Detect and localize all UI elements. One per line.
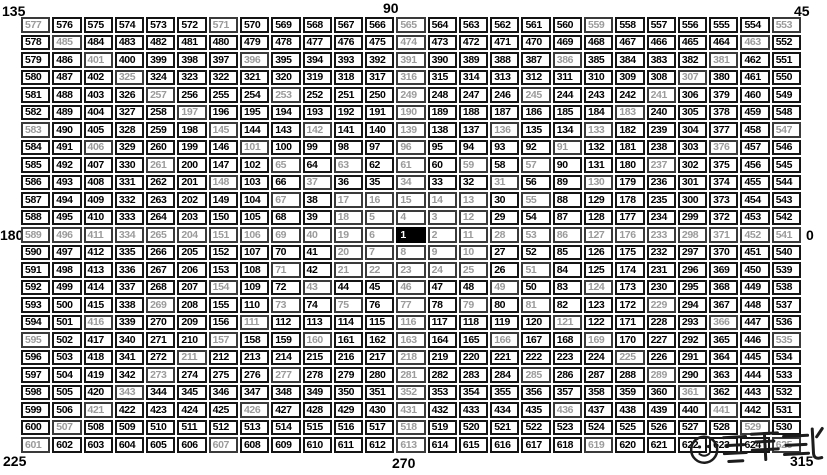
grid-cell: 276: [240, 367, 269, 383]
grid-cell: 417: [84, 332, 113, 348]
grid-cell: 420: [84, 385, 113, 401]
grid-cell: 508: [84, 420, 113, 436]
grid-cell: 335: [115, 245, 144, 261]
grid-cell: 209: [177, 315, 206, 331]
angle-line-cell: 57: [521, 157, 550, 173]
angle-line-cell: 142: [303, 122, 332, 138]
grid-cell: 458: [740, 122, 769, 138]
angle-line-cell: 381: [709, 52, 738, 68]
grid-cell: 134: [553, 122, 582, 138]
grid-cell: 114: [334, 315, 363, 331]
angle-line-cell: 463: [740, 35, 769, 51]
grid-cell: 543: [772, 192, 801, 208]
grid-cell: 544: [772, 175, 801, 191]
grid-cell: 568: [303, 17, 332, 33]
angle-line-cell: 583: [21, 122, 50, 138]
grid-cell: 187: [490, 105, 519, 121]
grid-cell: 618: [553, 437, 582, 453]
grid-cell: 502: [52, 332, 81, 348]
grid-cell: 199: [177, 140, 206, 156]
grid-cell: 102: [240, 157, 269, 173]
angle-line-cell: 421: [84, 402, 113, 418]
grid-cell: 312: [521, 70, 550, 86]
grid-cell: 78: [428, 297, 457, 313]
grid-cell: 192: [334, 105, 363, 121]
grid-cell: 152: [209, 245, 238, 261]
angle-line-cell: 298: [678, 227, 707, 243]
grid-cell: 363: [709, 367, 738, 383]
grid-cell: 606: [177, 437, 206, 453]
grid-cell: 100: [271, 140, 300, 156]
angle-line-cell: 371: [709, 227, 738, 243]
grid-cell: 504: [52, 367, 81, 383]
grid-cell: 33: [428, 175, 457, 191]
grid-cell: 194: [271, 105, 300, 121]
angle-line-cell: 65: [271, 157, 300, 173]
grid-cell: 572: [177, 17, 206, 33]
grid-cell: 240: [647, 105, 676, 121]
grid-cell: 310: [584, 70, 613, 86]
grid-cell: 203: [177, 210, 206, 226]
angle-line-cell: 151: [209, 227, 238, 243]
grid-cell: 193: [303, 105, 332, 121]
angle-line-cell: 24: [428, 262, 457, 278]
grid-cell: 605: [146, 437, 175, 453]
grid-cell: 475: [365, 35, 394, 51]
grid-cell: 248: [428, 87, 457, 103]
grid-cell: 320: [271, 70, 300, 86]
grid-cell: 612: [365, 437, 394, 453]
grid-cell: 303: [678, 140, 707, 156]
grid-cell: 215: [303, 350, 332, 366]
angle-line-cell: 25: [459, 262, 488, 278]
angle-line-cell: 176: [615, 227, 644, 243]
grid-cell: 380: [709, 70, 738, 86]
grid-cell: 405: [84, 122, 113, 138]
grid-cell: 42: [303, 262, 332, 278]
grid-cell: 395: [271, 52, 300, 68]
angle-label-270: 270: [392, 456, 415, 470]
grid-cell: 525: [615, 420, 644, 436]
grid-cell: 428: [303, 402, 332, 418]
grid-cell: 435: [521, 402, 550, 418]
angle-label-315: 315: [790, 454, 813, 468]
angle-line-cell: 218: [396, 350, 425, 366]
grid-cell: 201: [177, 175, 206, 191]
grid-cell: 159: [271, 332, 300, 348]
grid-cell: 591: [21, 262, 50, 278]
grid-cell: 456: [740, 157, 769, 173]
angle-line-cell: 31: [490, 175, 519, 191]
grid-cell: 297: [678, 245, 707, 261]
grid-cell: 567: [334, 17, 363, 33]
grid-cell: 501: [52, 315, 81, 331]
grid-cell: 429: [334, 402, 363, 418]
grid-cell: 109: [240, 280, 269, 296]
grid-cell: 147: [209, 157, 238, 173]
grid-cell: 460: [740, 87, 769, 103]
grid-cell: 304: [678, 122, 707, 138]
angle-label-45: 45: [794, 4, 810, 18]
grid-cell: 330: [115, 157, 144, 173]
grid-cell: 318: [334, 70, 363, 86]
grid-cell: 370: [709, 245, 738, 261]
grid-cell: 118: [459, 315, 488, 331]
grid-cell: 443: [740, 385, 769, 401]
grid-cell: 397: [209, 52, 238, 68]
angle-line-cell: 589: [21, 227, 50, 243]
angle-line-cell: 334: [115, 227, 144, 243]
grid-cell: 327: [115, 105, 144, 121]
grid-cell: 586: [21, 175, 50, 191]
center-cell-highlight: 1: [396, 227, 425, 243]
grid-cell: 315: [428, 70, 457, 86]
grid-cell: 178: [615, 192, 644, 208]
angle-line-cell: 261: [146, 157, 175, 173]
grid-cell: 575: [84, 17, 113, 33]
grid-cell: 36: [334, 175, 363, 191]
grid-cell: 165: [459, 332, 488, 348]
grid-cell: 90: [553, 157, 582, 173]
grid-cell: 112: [271, 315, 300, 331]
grid-cell: 526: [647, 420, 676, 436]
grid-cell: 566: [365, 17, 394, 33]
grid-cell: 404: [84, 105, 113, 121]
grid-cell: 29: [490, 210, 519, 226]
grid-cell: 377: [709, 122, 738, 138]
angle-line-cell: 416: [84, 315, 113, 331]
angle-line-cell: 496: [52, 227, 81, 243]
grid-cell: 490: [52, 122, 81, 138]
angle-line-cell: 190: [396, 105, 425, 121]
grid-cell: 313: [490, 70, 519, 86]
angle-line-cell: 51: [521, 262, 550, 278]
angle-line-cell: 157: [209, 332, 238, 348]
angle-line-cell: 7: [365, 245, 394, 261]
grid-cell: 488: [52, 87, 81, 103]
grid-cell: 394: [303, 52, 332, 68]
grid-cell: 418: [84, 350, 113, 366]
angle-line-cell: 6: [365, 227, 394, 243]
grid-cell: 379: [709, 87, 738, 103]
grid-cell: 223: [553, 350, 582, 366]
grid-cell: 255: [209, 87, 238, 103]
grid-cell: 308: [647, 70, 676, 86]
grid-cell: 449: [740, 280, 769, 296]
grid-cell: 615: [459, 437, 488, 453]
angle-line-cell: 277: [271, 367, 300, 383]
grid-cell: 368: [709, 280, 738, 296]
angle-line-cell: 43: [303, 280, 332, 296]
grid-cell: 378: [709, 105, 738, 121]
grid-cell: 68: [271, 210, 300, 226]
angle-line-cell: 37: [303, 175, 332, 191]
grid-cell: 275: [209, 367, 238, 383]
grid-cell: 407: [84, 157, 113, 173]
angle-label-135: 135: [2, 4, 25, 18]
grid-cell: 483: [115, 35, 144, 51]
grid-cell: 232: [647, 245, 676, 261]
grid-cell: 131: [584, 157, 613, 173]
grid-cell: 497: [52, 245, 81, 261]
grid-cell: 173: [615, 280, 644, 296]
grid-cell: 168: [553, 332, 582, 348]
grid-cell: 516: [334, 420, 363, 436]
angle-line-cell: 391: [396, 52, 425, 68]
grid-cell: 104: [240, 192, 269, 208]
angle-line-cell: 71: [271, 262, 300, 278]
angle-line-cell: 204: [177, 227, 206, 243]
angle-line-cell: 53: [521, 227, 550, 243]
grid-cell: 593: [21, 297, 50, 313]
angle-label-90: 90: [383, 1, 399, 15]
grid-cell: 280: [365, 367, 394, 383]
grid-cell: 461: [740, 70, 769, 86]
grid-cell: 284: [490, 367, 519, 383]
grid-cell: 384: [615, 52, 644, 68]
angle-line-cell: 21: [334, 262, 363, 278]
grid-cell: 94: [459, 140, 488, 156]
grid-cell: 610: [303, 437, 332, 453]
grid-cell: 423: [146, 402, 175, 418]
angle-line-cell: 96: [396, 140, 425, 156]
grid-cell: 35: [365, 175, 394, 191]
grid-cell: 146: [209, 140, 238, 156]
grid-cell: 468: [584, 35, 613, 51]
grid-cell: 202: [177, 192, 206, 208]
grid-cell: 230: [647, 280, 676, 296]
grid-cell: 372: [709, 210, 738, 226]
grid-cell: 442: [740, 402, 769, 418]
grid-cell: 499: [52, 280, 81, 296]
grid-cell: 212: [209, 350, 238, 366]
angle-line-cell: 91: [553, 140, 582, 156]
angle-line-cell: 361: [678, 385, 707, 401]
angle-line-cell: 133: [584, 122, 613, 138]
angle-line-cell: 507: [52, 420, 81, 436]
grid-cell: 256: [177, 87, 206, 103]
grid-cell: 84: [553, 262, 582, 278]
grid-cell: 500: [52, 297, 81, 313]
grid-cell: 551: [772, 52, 801, 68]
angle-line-cell: 79: [459, 297, 488, 313]
grid-cell: 457: [740, 140, 769, 156]
grid-cell: 546: [772, 140, 801, 156]
grid-cell: 243: [584, 87, 613, 103]
angle-line-cell: 613: [396, 437, 425, 453]
grid-cell: 562: [490, 17, 519, 33]
grid-cell: 184: [584, 105, 613, 121]
grid-cell: 554: [740, 17, 769, 33]
angle-line-cell: 411: [84, 227, 113, 243]
grid-cell: 263: [146, 192, 175, 208]
grid-cell: 129: [584, 192, 613, 208]
grid-cell: 604: [115, 437, 144, 453]
grid-cell: 538: [772, 280, 801, 296]
grid-cell: 402: [84, 70, 113, 86]
grid-cell: 98: [334, 140, 363, 156]
grid-cell: 177: [615, 210, 644, 226]
grid-cell: 44: [334, 280, 363, 296]
grid-cell: 117: [428, 315, 457, 331]
grid-cell: 422: [115, 402, 144, 418]
angle-line-cell: 23: [396, 262, 425, 278]
grid-cell: 414: [84, 280, 113, 296]
grid-cell: 89: [553, 175, 582, 191]
angle-line-cell: 559: [584, 17, 613, 33]
grid-cell: 191: [365, 105, 394, 121]
angle-line-cell: 441: [709, 402, 738, 418]
angle-line-cell: 233: [647, 227, 676, 243]
grid-cell: 231: [647, 262, 676, 278]
grid-cell: 314: [459, 70, 488, 86]
grid-cell: 430: [365, 402, 394, 418]
grid-cell: 600: [21, 420, 50, 436]
angle-line-cell: 49: [490, 280, 519, 296]
angle-line-cell: 197: [177, 105, 206, 121]
grid-cell: 293: [678, 315, 707, 331]
angle-label-225: 225: [3, 454, 26, 468]
grid-cell: 76: [365, 297, 394, 313]
grid-cell: 235: [647, 192, 676, 208]
grid-cell: 348: [271, 385, 300, 401]
grid-cell: 602: [52, 437, 81, 453]
grid-cell: 48: [459, 280, 488, 296]
angle-line-cell: 124: [584, 280, 613, 296]
angle-line-cell: 241: [647, 87, 676, 103]
grid-cell: 236: [647, 175, 676, 191]
grid-cell: 482: [146, 35, 175, 51]
grid-cell: 494: [52, 192, 81, 208]
grid-cell: 445: [740, 350, 769, 366]
grid-cell: 476: [334, 35, 363, 51]
grid-cell: 271: [146, 332, 175, 348]
grid-cell: 264: [146, 210, 175, 226]
grid-cell: 52: [521, 245, 550, 261]
grid-cell: 506: [52, 402, 81, 418]
angle-line-cell: 163: [396, 332, 425, 348]
grid-cell: 164: [428, 332, 457, 348]
grid-cell: 336: [115, 262, 144, 278]
grid-cell: 161: [334, 332, 363, 348]
angle-line-cell: 77: [396, 297, 425, 313]
grid-cell: 558: [615, 17, 644, 33]
grid-cell: 217: [365, 350, 394, 366]
grid-cell: 185: [553, 105, 582, 121]
grid-cell: 522: [521, 420, 550, 436]
grid-cell: 597: [21, 367, 50, 383]
grid-cell: 608: [240, 437, 269, 453]
grid-cell: 617: [521, 437, 550, 453]
grid-cell: 267: [146, 262, 175, 278]
grid-cell: 294: [678, 297, 707, 313]
grid-cell: 62: [365, 157, 394, 173]
grid-cell: 92: [521, 140, 550, 156]
grid-cell: 503: [52, 350, 81, 366]
grid-cell: 462: [740, 52, 769, 68]
grid-cell: 221: [490, 350, 519, 366]
grid-cell: 596: [21, 350, 50, 366]
angle-line-cell: 595: [21, 332, 50, 348]
grid-cell: 419: [84, 367, 113, 383]
grid-cell: 260: [146, 140, 175, 156]
angle-line-cell: 553: [772, 17, 801, 33]
angle-line-cell: 211: [177, 350, 206, 366]
angle-line-cell: 145: [209, 122, 238, 138]
grid-cell: 309: [615, 70, 644, 86]
grid-cell: 32: [459, 175, 488, 191]
grid-cell: 182: [615, 122, 644, 138]
angle-line-cell: 285: [521, 367, 550, 383]
grid-cell: 175: [615, 245, 644, 261]
grid-cell: 258: [146, 105, 175, 121]
angle-line-cell: 86: [553, 227, 582, 243]
grid-cell: 509: [115, 420, 144, 436]
angle-line-cell: 237: [647, 157, 676, 173]
grid-cell: 200: [177, 157, 206, 173]
grid-cell: 466: [647, 35, 676, 51]
grid-cell: 556: [678, 17, 707, 33]
grid-cell: 478: [271, 35, 300, 51]
angle-line-cell: 13: [459, 192, 488, 208]
grid-cell: 113: [303, 315, 332, 331]
grid-cell: 345: [177, 385, 206, 401]
grid-cell: 574: [115, 17, 144, 33]
angle-line-cell: 601: [21, 437, 50, 453]
grid-cell: 26: [490, 262, 519, 278]
grid-cell: 268: [146, 280, 175, 296]
grid-cell: 616: [490, 437, 519, 453]
angle-label-0: 0: [806, 228, 814, 242]
grid-cell: 60: [428, 157, 457, 173]
grid-cell: 536: [772, 315, 801, 331]
grid-cell: 455: [740, 175, 769, 191]
grid-cell: 227: [647, 332, 676, 348]
grid-cell: 110: [240, 297, 269, 313]
grid-cell: 548: [772, 105, 801, 121]
grid-cell: 353: [428, 385, 457, 401]
grid-cell: 532: [772, 385, 801, 401]
grid-cell: 287: [584, 367, 613, 383]
grid-cell: 549: [772, 87, 801, 103]
grid-cell: 447: [740, 315, 769, 331]
angle-line-cell: 127: [584, 227, 613, 243]
grid-cell: 198: [177, 122, 206, 138]
grid-cell: 557: [647, 17, 676, 33]
grid-cell: 403: [84, 87, 113, 103]
grid-cell: 530: [772, 420, 801, 436]
angle-line-cell: 547: [772, 122, 801, 138]
angle-line-cell: 20: [334, 245, 363, 261]
grid-cell: 542: [772, 210, 801, 226]
grid-cell: 286: [553, 367, 582, 383]
angle-line-cell: 139: [396, 122, 425, 138]
grid-cell: 195: [240, 105, 269, 121]
grid-cell: 344: [146, 385, 175, 401]
grid-cell: 424: [177, 402, 206, 418]
grid-cell: 489: [52, 105, 81, 121]
grid-cell: 326: [115, 87, 144, 103]
grid-cell: 208: [177, 297, 206, 313]
grid-cell: 172: [615, 297, 644, 313]
angle-line-cell: 9: [428, 245, 457, 261]
angle-line-cell: 253: [271, 87, 300, 103]
grid-cell: 561: [521, 17, 550, 33]
grid-cell: 409: [84, 192, 113, 208]
grid-cell: 594: [21, 315, 50, 331]
angle-line-cell: 14: [428, 192, 457, 208]
grid-cell: 337: [115, 280, 144, 296]
